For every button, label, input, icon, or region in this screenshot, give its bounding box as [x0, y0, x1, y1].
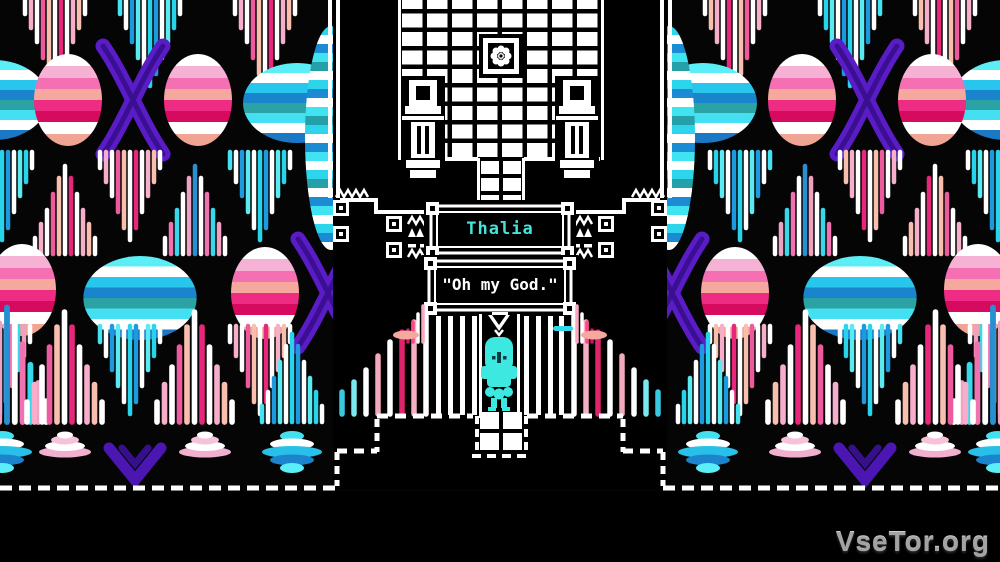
speaker-name: Thalia: [426, 204, 574, 254]
statue-left: [401, 76, 445, 178]
flower-emblem-icon: [479, 34, 523, 78]
door-frame-left: [479, 314, 482, 418]
dialog-text: "Oh my God.": [424, 261, 576, 307]
door-frame-right: [517, 314, 520, 418]
statue-right: [555, 76, 599, 178]
game-screen[interactable]: Thalia "Oh my God." VseTor.org: [0, 0, 1000, 562]
watermark: VseTor.org: [836, 526, 990, 558]
